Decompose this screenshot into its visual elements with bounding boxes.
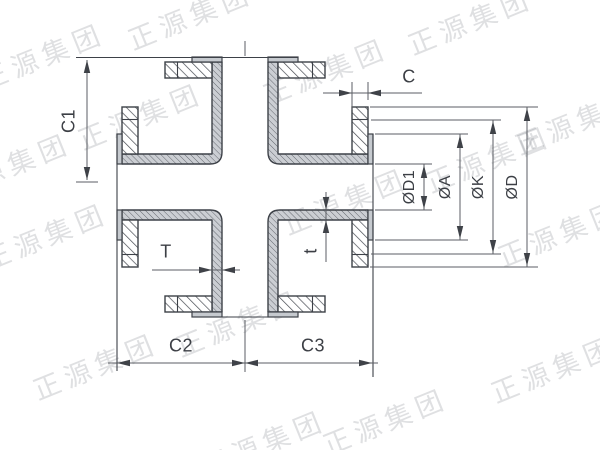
- dimension-label-diameter-d1: ØD1: [401, 170, 419, 204]
- socket-end-caps: [117, 57, 373, 317]
- rib-step-lines: [122, 62, 368, 312]
- dimension-label-c3: C3: [301, 336, 325, 357]
- dimension-label-c1: C1: [59, 109, 80, 133]
- dimension-label-T-wall-thickness: T: [160, 242, 172, 263]
- technical-drawing-canvas: 正源集团正源集团正源集团正源集团正源集团正源集团正源集团正源集团正源集团正源集团…: [0, 0, 600, 450]
- dimension-label-c: C: [402, 67, 416, 88]
- socket-ribs: [122, 62, 368, 312]
- dimension-label-diameter-a: ØA: [437, 175, 455, 199]
- dimension-label-diameter-d: ØD: [504, 175, 522, 200]
- dimension-label-t-wall-thickness: t: [301, 248, 322, 254]
- dimension-label-diameter-k: ØK: [470, 175, 488, 199]
- dimension-label-c2: C2: [169, 336, 193, 357]
- fitting-walls: [122, 62, 368, 312]
- cross-fitting-section-drawing: [0, 0, 600, 450]
